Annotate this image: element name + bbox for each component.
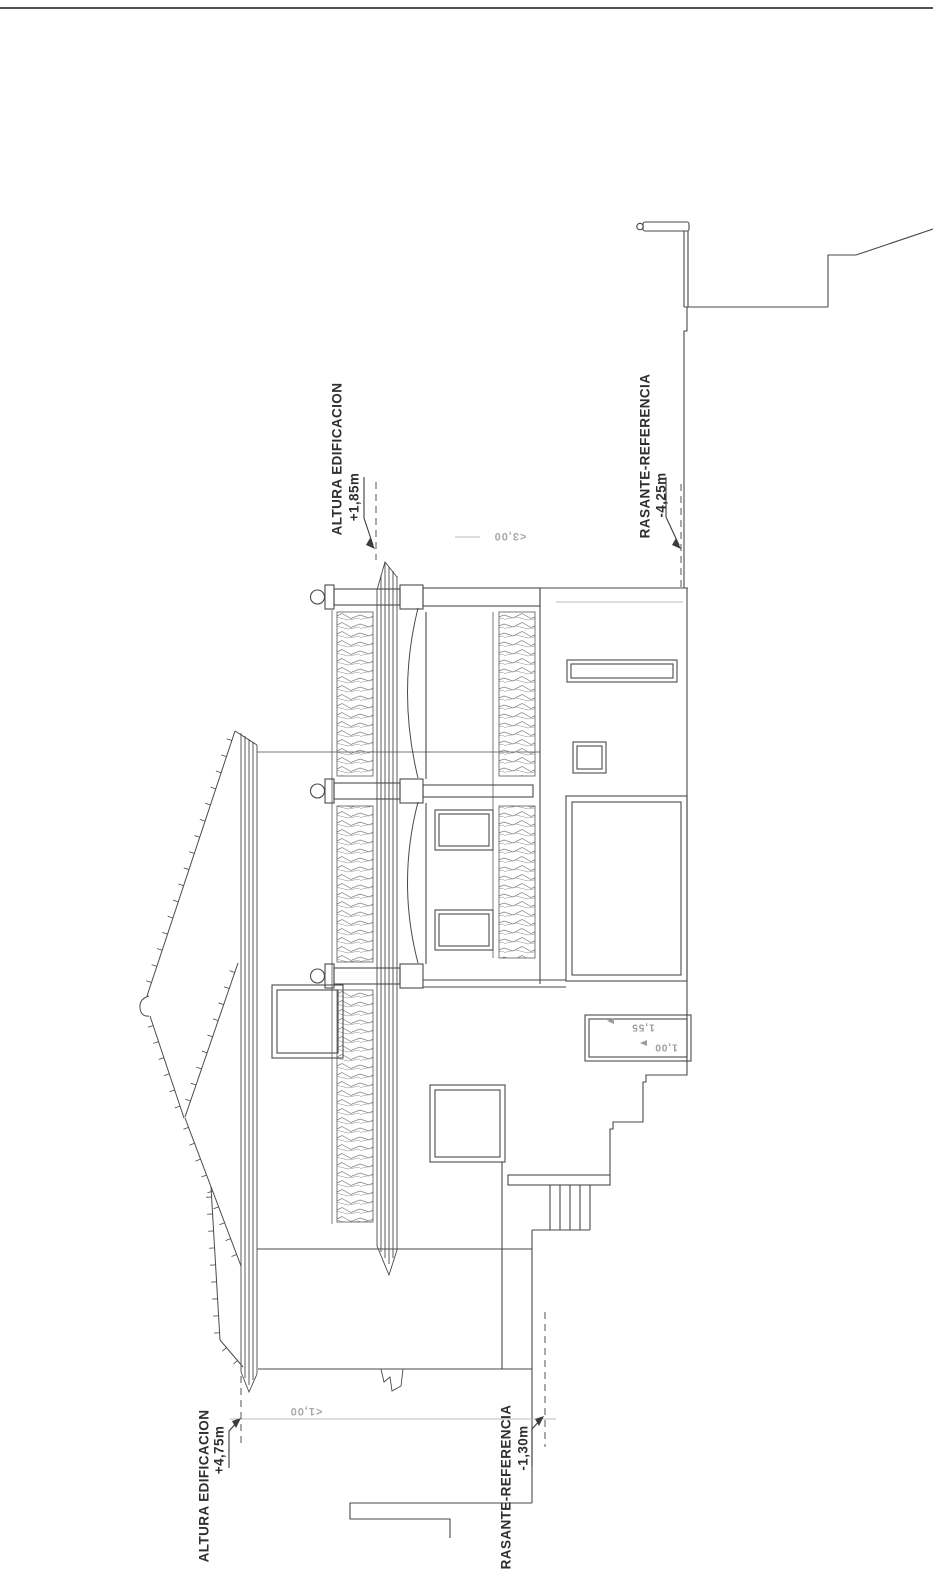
fascia-band-upper [377,562,397,1275]
altura-left-label: ALTURA EDIFICACION [197,1410,212,1563]
awning-curves [408,608,419,963]
dimension-upper: <3,00 [494,530,527,542]
reference-dashed-lines [241,482,681,1448]
elevation-drawing [0,0,933,1592]
altura-left-value: +4,75m [212,1426,227,1475]
building-outline [257,588,688,1538]
rasante-top-label: RASANTE-REFERENCIA [638,374,653,539]
altura-top-label: ALTURA EDIFICACION [330,383,345,536]
dimension-box-lower: 1,00 [654,1042,677,1053]
rasante-top-value: -4,25m [654,472,669,517]
dimension-box-upper: 1,55 [631,1022,654,1033]
windows [272,660,691,1162]
dimension-lower: <1,00 [290,1405,323,1417]
rasante-left-label: RASANTE-REFERENCIA [499,1405,514,1570]
drawing-sheet: ALTURA EDIFICACION +1,85m RASANTE-REFERE… [0,0,933,1592]
faint-lines [230,537,683,1419]
annotation-leaders [229,477,679,1468]
rasante-left-value: -1,30m [516,1425,531,1470]
roof-tile-ticks [146,739,237,1364]
altura-top-value: +1,85m [347,473,362,522]
fascia-band-roof [241,733,257,1392]
annotation-arrowheads [232,538,681,1428]
